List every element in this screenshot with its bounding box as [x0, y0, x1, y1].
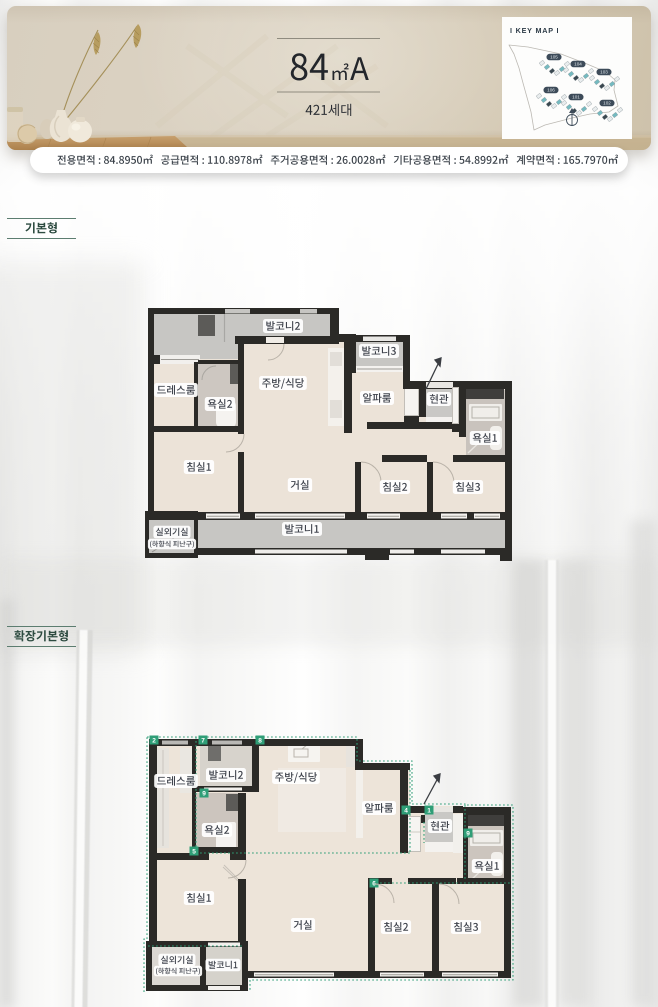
- svg-text:2: 2: [152, 737, 156, 744]
- svg-text:9: 9: [466, 830, 470, 837]
- svg-text:4: 4: [404, 807, 408, 814]
- svg-text:9: 9: [202, 790, 206, 797]
- svg-text:5: 5: [192, 848, 196, 855]
- svg-text:1: 1: [427, 807, 431, 814]
- svg-text:7: 7: [201, 737, 205, 744]
- svg-text:8: 8: [258, 737, 262, 744]
